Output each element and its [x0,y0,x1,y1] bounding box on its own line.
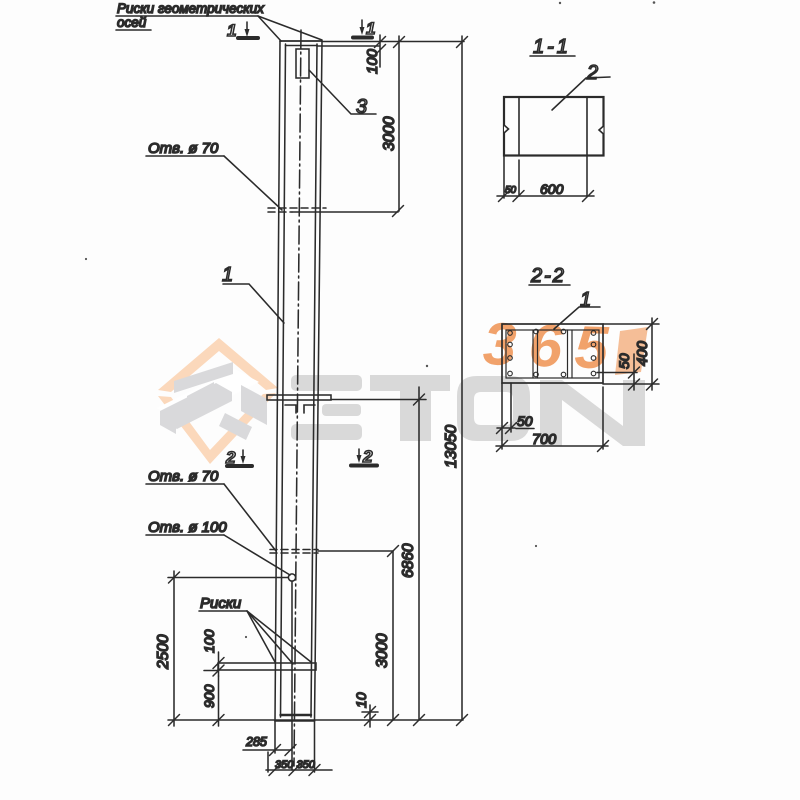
svg-text:900: 900 [201,684,217,708]
svg-text:3: 3 [356,96,367,118]
svg-text:Риски: Риски [200,595,242,612]
svg-text:2: 2 [586,62,598,84]
svg-text:2-2: 2-2 [530,265,566,287]
svg-text:1: 1 [366,19,375,38]
svg-text:13050: 13050 [443,425,460,468]
svg-text:Риски геометрических: Риски геометрических [117,1,265,16]
svg-text:50: 50 [505,185,517,196]
svg-text:Отв. ø 70: Отв. ø 70 [148,140,219,157]
svg-text:600: 600 [540,181,564,197]
svg-text:350: 350 [297,759,316,771]
svg-text:100: 100 [364,48,381,74]
svg-text:50: 50 [616,353,632,369]
svg-text:2500: 2500 [155,634,172,670]
svg-text:100: 100 [201,629,217,653]
svg-text:10: 10 [353,692,369,708]
svg-text:Отв. ø 100: Отв. ø 100 [148,519,227,536]
svg-text:1-1: 1-1 [533,36,571,58]
svg-text:3000: 3000 [381,116,398,151]
svg-text:2: 2 [362,447,373,466]
svg-text:1: 1 [227,21,236,40]
svg-text:осей: осей [117,15,147,30]
svg-text:3000: 3000 [374,633,391,668]
svg-text:Отв. ø 70: Отв. ø 70 [148,468,219,485]
svg-text:365: 365 [482,310,622,382]
svg-text:1: 1 [222,264,233,286]
svg-text:6860: 6860 [400,543,417,578]
svg-text:400: 400 [634,340,651,366]
svg-text:350: 350 [275,759,294,771]
svg-text:50: 50 [517,413,533,429]
svg-text:285: 285 [245,735,267,749]
svg-text:700: 700 [532,432,556,448]
